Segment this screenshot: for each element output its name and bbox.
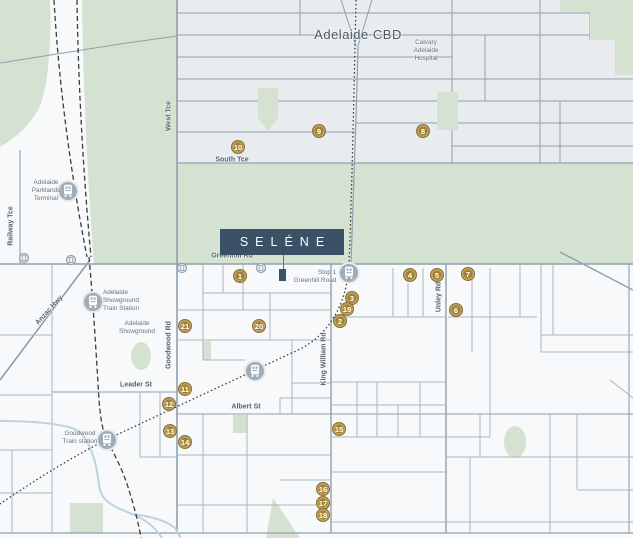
parklands-terminal-station-icon (58, 181, 78, 201)
bus-stop-icon (67, 256, 76, 265)
goodwood-station-icon (97, 430, 117, 450)
cbd-blocks (177, 0, 633, 163)
tram-stop-1-icon (339, 263, 359, 283)
bus-stop-icon (257, 264, 266, 273)
showground-station-icon (83, 292, 103, 312)
bus-stop-icon (178, 264, 187, 273)
map-canvas (0, 0, 633, 538)
bus-stop-icon (20, 254, 29, 263)
tram-crossing-icon (245, 361, 265, 381)
adelaide-location-map: Adelaide CBD Calvary Adelaide Hospital W… (0, 0, 633, 538)
